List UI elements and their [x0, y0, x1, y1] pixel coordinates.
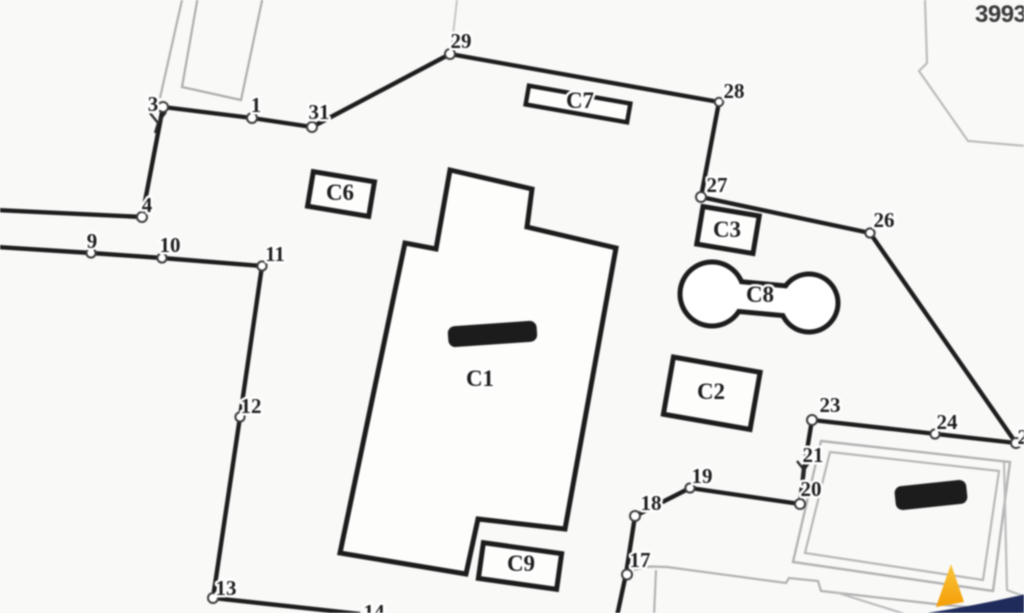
svg-text:24: 24: [937, 410, 959, 434]
svg-text:27: 27: [707, 173, 728, 197]
svg-text:26: 26: [874, 208, 895, 232]
svg-text:9: 9: [87, 229, 98, 253]
svg-text:28: 28: [724, 79, 745, 103]
svg-text:3993: 3993: [975, 1, 1024, 28]
svg-text:14: 14: [364, 600, 386, 613]
svg-text:12: 12: [241, 394, 262, 418]
svg-text:C7: C7: [566, 88, 594, 113]
svg-text:13: 13: [216, 576, 237, 600]
svg-text:C9: C9: [507, 551, 535, 576]
svg-text:20: 20: [801, 477, 822, 501]
svg-text:23: 23: [820, 393, 841, 417]
svg-text:C8: C8: [746, 282, 774, 307]
svg-text:29: 29: [451, 29, 472, 53]
svg-text:19: 19: [692, 464, 713, 488]
svg-text:1: 1: [251, 93, 262, 117]
svg-text:3: 3: [148, 92, 159, 116]
svg-text:C6: C6: [326, 180, 354, 205]
svg-text:31: 31: [309, 100, 330, 124]
svg-text:C2: C2: [697, 379, 725, 404]
svg-text:11: 11: [265, 242, 285, 266]
svg-text:10: 10: [160, 233, 181, 257]
svg-text:4: 4: [142, 193, 153, 217]
svg-text:C1: C1: [466, 366, 494, 391]
svg-text:17: 17: [630, 548, 651, 572]
svg-text:18: 18: [641, 491, 662, 515]
svg-text:25: 25: [1018, 425, 1024, 449]
svg-text:21: 21: [803, 443, 824, 467]
svg-text:C3: C3: [713, 217, 741, 242]
